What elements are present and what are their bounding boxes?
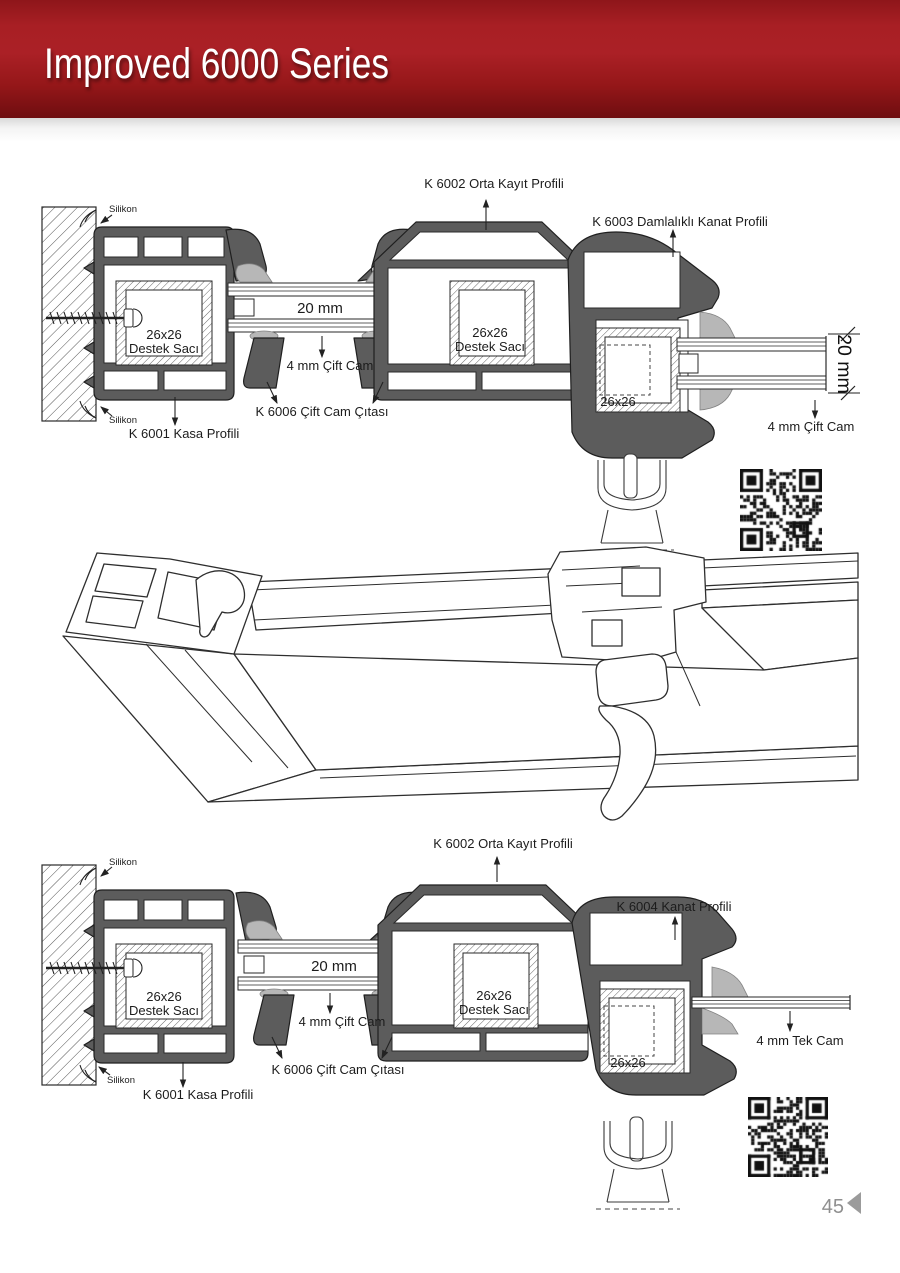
kasa-profile [84, 890, 234, 1063]
label-cift-cam-right: 4 mm Çift Cam [768, 419, 855, 434]
qr-code-top [740, 469, 822, 551]
label-k6002: K 6002 Orta Kayıt Profili [433, 836, 573, 851]
qr-code-bottom [748, 1097, 828, 1177]
header-banner: Improved 6000 Series [0, 0, 900, 118]
label-reinf-mid-1: 26x26 [472, 325, 507, 340]
right-glazing-unit [677, 336, 826, 391]
espagnolette-mechanism [596, 1117, 680, 1209]
page-corner-triangle-icon [847, 1192, 861, 1214]
label-k6001: K 6001 Kasa Profili [143, 1087, 254, 1102]
label-reinf-mid-1: 26x26 [476, 988, 511, 1003]
label-k6001: K 6001 Kasa Profili [129, 426, 240, 441]
label-tek-cam: 4 mm Tek Cam [756, 1033, 843, 1048]
label-silikon-bottom: Silikon [107, 1075, 135, 1086]
catalog-page: Improved 6000 Series [0, 0, 900, 1273]
banner-shadow [0, 118, 900, 142]
label-silikon-bottom: Silikon [109, 415, 137, 426]
handle-base [596, 654, 668, 706]
middle-cut-face [548, 547, 706, 662]
label-k6003: K 6003 Damlalıklı Kanat Profili [592, 214, 768, 229]
isometric-corner-drawing [0, 540, 900, 830]
label-reinf-sash: 26x26 [600, 394, 635, 409]
single-glass [692, 995, 850, 1010]
page-number: 45 [810, 1196, 844, 1219]
orta-kayit-profile [378, 885, 588, 1061]
kanat-k6004-profile [572, 897, 748, 1095]
label-reinf-sash: 26x26 [610, 1055, 645, 1070]
label-k6004: K 6004 Kanat Profili [617, 899, 732, 914]
label-k6006: K 6006 Çift Cam Çıtası [256, 404, 389, 419]
label-cift-cam-left: 4 mm Çift Cam [299, 1014, 386, 1029]
wall-section [42, 865, 96, 1085]
label-cift-cam-left: 4 mm Çift Cam [287, 358, 374, 373]
label-reinf-mid-2: Destek Sacı [455, 339, 525, 354]
label-reinf-left-2: Destek Sacı [129, 341, 199, 356]
label-silikon-top: Silikon [109, 857, 137, 868]
label-k6006: K 6006 Çift Cam Çıtası [272, 1062, 405, 1077]
espagnolette-mechanism [590, 454, 674, 550]
glass-dimension: 20 mm [828, 327, 860, 400]
label-reinf-left-1: 26x26 [146, 327, 181, 342]
label-glass-width: 20 mm [311, 958, 357, 975]
dimension-20mm-label: 20 mm [833, 334, 855, 394]
label-silikon-top: Silikon [109, 204, 137, 215]
label-reinf-mid-2: Destek Sacı [459, 1002, 529, 1017]
label-glass-width: 20 mm [297, 300, 343, 317]
orta-kayit-profile [374, 222, 584, 400]
label-reinf-left-2: Destek Sacı [129, 1003, 199, 1018]
label-k6002: K 6002 Orta Kayıt Profili [424, 176, 564, 191]
page-title: Improved 6000 Series [44, 40, 389, 89]
label-reinf-left-1: 26x26 [146, 989, 181, 1004]
